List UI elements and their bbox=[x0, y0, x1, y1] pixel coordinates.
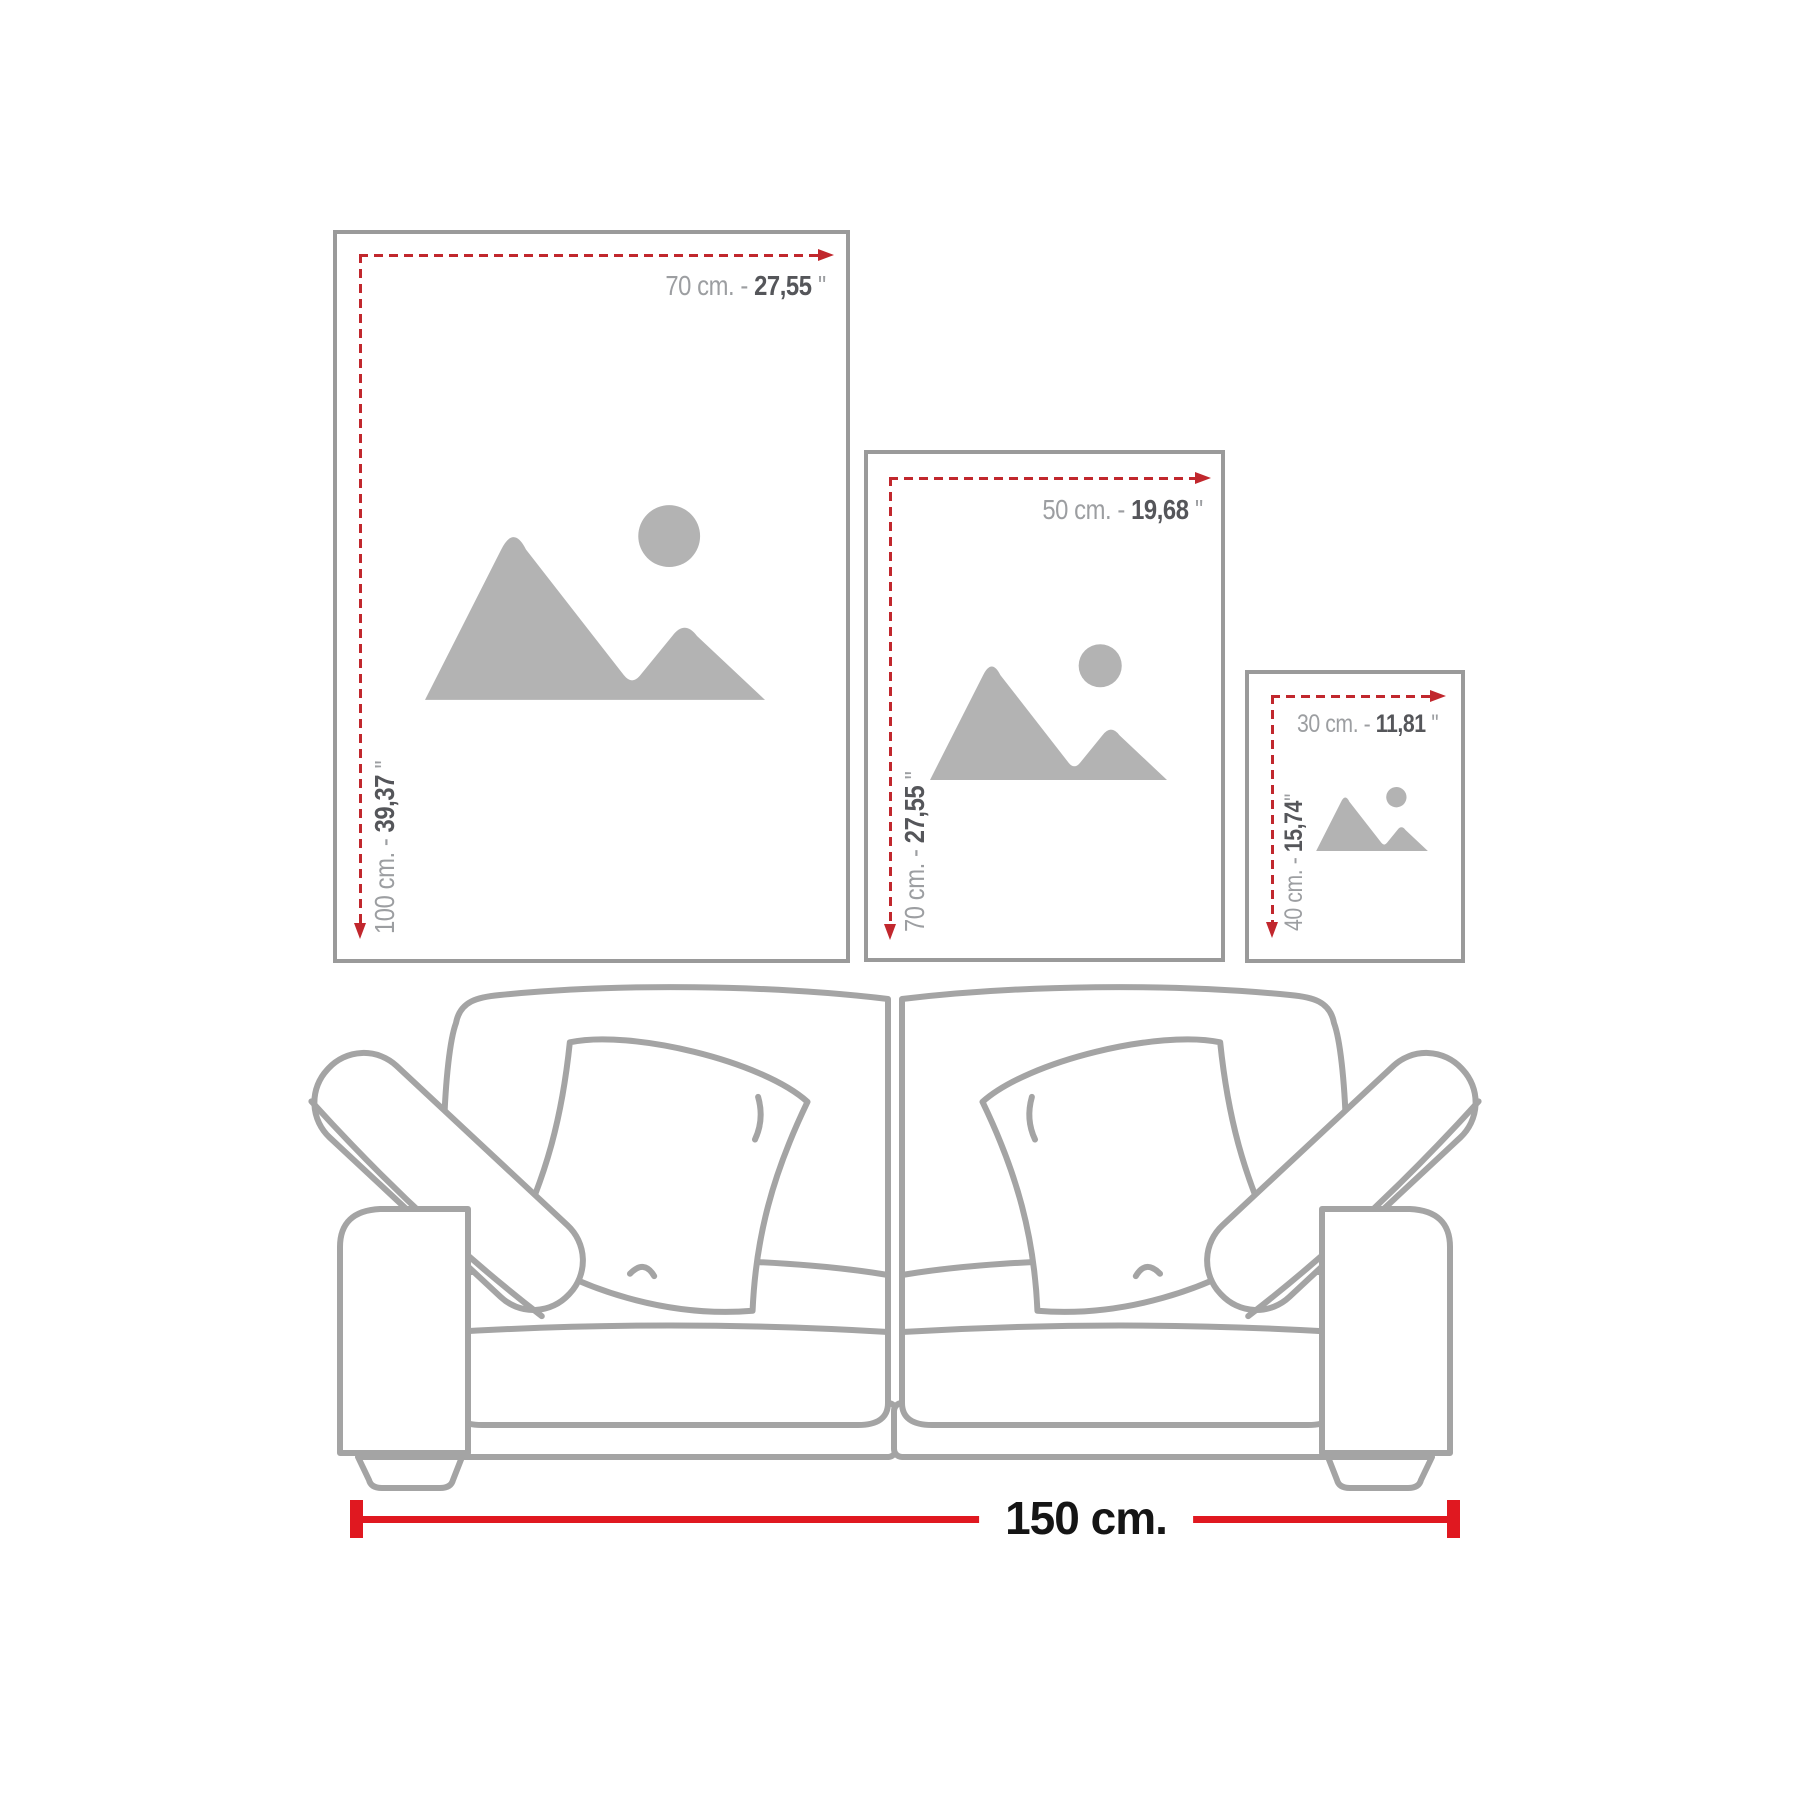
arrow-right-icon bbox=[818, 249, 834, 261]
width-dimension-line bbox=[1271, 695, 1431, 698]
height-dimension-line bbox=[889, 477, 892, 925]
height-inch-value: 27,55 bbox=[899, 786, 930, 843]
height-cm-label: 100 cm. - bbox=[369, 832, 400, 934]
width-inch-mark: '' bbox=[1425, 710, 1438, 738]
arrow-down-icon bbox=[884, 924, 896, 940]
height-cm-label: 70 cm. - bbox=[899, 843, 930, 932]
sofa-width-measure: 150 cm. bbox=[350, 1500, 1460, 1538]
frame-small: 30 cm. - 11,81 '' 40 cm. - 15,74'' bbox=[1245, 670, 1465, 963]
wall-art-size-guide: 70 cm. - 27,55 '' 100 cm. - 39,37 '' 50 … bbox=[0, 0, 1800, 1800]
height-dimension-label: 70 cm. - 27,55 '' bbox=[899, 771, 931, 932]
measure-endcap-left bbox=[350, 1500, 363, 1538]
width-dimension-line bbox=[359, 254, 819, 257]
width-cm-label: 70 cm. - bbox=[665, 270, 754, 301]
arrow-right-icon bbox=[1195, 472, 1211, 484]
width-inch-value: 27,55 bbox=[754, 270, 811, 301]
height-inch-value: 15,74 bbox=[1280, 801, 1308, 852]
width-dimension-label: 50 cm. - 19,68 '' bbox=[1042, 494, 1203, 526]
height-dimension-line bbox=[359, 254, 362, 924]
image-placeholder-icon bbox=[1316, 786, 1428, 851]
height-dimension-line bbox=[1271, 695, 1274, 923]
height-inch-mark: '' bbox=[369, 761, 400, 775]
arrow-right-icon bbox=[1430, 690, 1446, 702]
width-inch-value: 11,81 bbox=[1375, 710, 1425, 738]
width-dimension-label: 70 cm. - 27,55 '' bbox=[665, 270, 826, 302]
measure-endcap-right bbox=[1447, 1500, 1460, 1538]
sofa-width-label: 150 cm. bbox=[979, 1491, 1193, 1545]
height-inch-value: 39,37 bbox=[369, 775, 400, 832]
image-placeholder-icon bbox=[425, 502, 765, 700]
width-dimension-label: 30 cm. - 11,81 '' bbox=[1297, 710, 1438, 739]
sofa-illustration bbox=[300, 975, 1510, 1495]
width-inch-mark: '' bbox=[1189, 494, 1203, 525]
height-dimension-label: 40 cm. - 15,74'' bbox=[1280, 794, 1309, 931]
height-inch-mark: '' bbox=[899, 771, 930, 785]
width-cm-label: 30 cm. - bbox=[1297, 710, 1376, 738]
width-inch-value: 19,68 bbox=[1131, 494, 1188, 525]
frame-medium: 50 cm. - 19,68 '' 70 cm. - 27,55 '' bbox=[864, 450, 1225, 962]
frame-large: 70 cm. - 27,55 '' 100 cm. - 39,37 '' bbox=[333, 230, 850, 963]
width-cm-label: 50 cm. - bbox=[1042, 494, 1131, 525]
measure-line bbox=[363, 1516, 1447, 1523]
height-cm-label: 40 cm. - bbox=[1280, 852, 1308, 931]
height-dimension-label: 100 cm. - 39,37 '' bbox=[369, 761, 401, 934]
height-inch-mark: '' bbox=[1280, 794, 1308, 801]
image-placeholder-icon bbox=[930, 642, 1167, 780]
arrow-down-icon bbox=[354, 923, 366, 939]
width-dimension-line bbox=[889, 477, 1196, 480]
arrow-down-icon bbox=[1266, 922, 1278, 938]
width-inch-mark: '' bbox=[812, 270, 826, 301]
